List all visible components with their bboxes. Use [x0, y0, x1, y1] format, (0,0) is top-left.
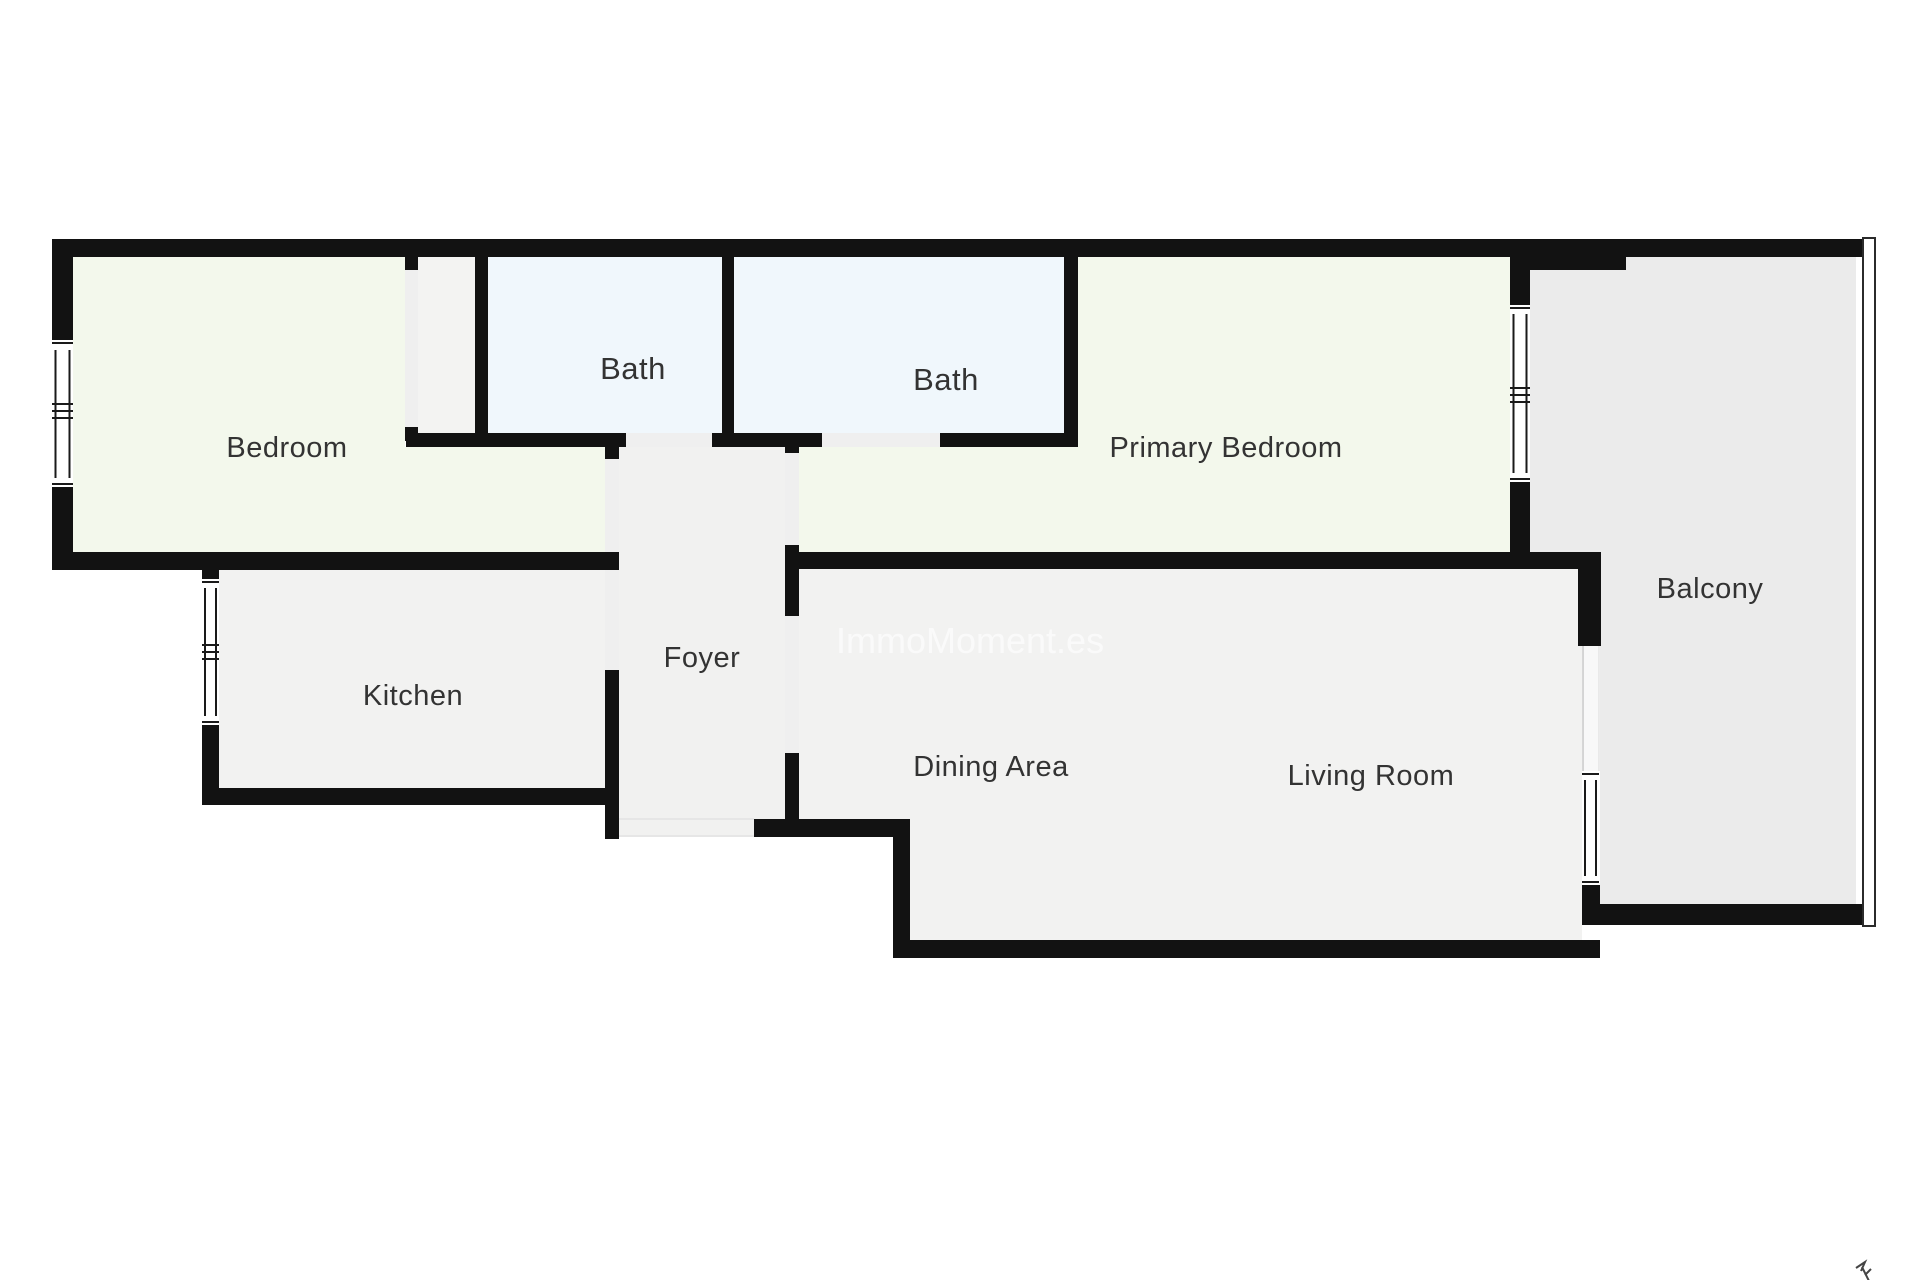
svg-text:ImmoMoment.es: ImmoMoment.es — [836, 620, 1104, 661]
svg-text:Bath: Bath — [913, 362, 979, 397]
svg-text:Primary Bedroom: Primary Bedroom — [1109, 432, 1342, 464]
svg-text:Dining Area: Dining Area — [913, 751, 1069, 783]
svg-text:Bedroom: Bedroom — [226, 432, 347, 464]
svg-text:Living Room: Living Room — [1288, 760, 1455, 792]
svg-text:Bath: Bath — [600, 351, 666, 386]
svg-text:Balcony: Balcony — [1657, 573, 1764, 605]
svg-text:Kitchen: Kitchen — [363, 680, 463, 712]
svg-text:Foyer: Foyer — [664, 642, 741, 674]
